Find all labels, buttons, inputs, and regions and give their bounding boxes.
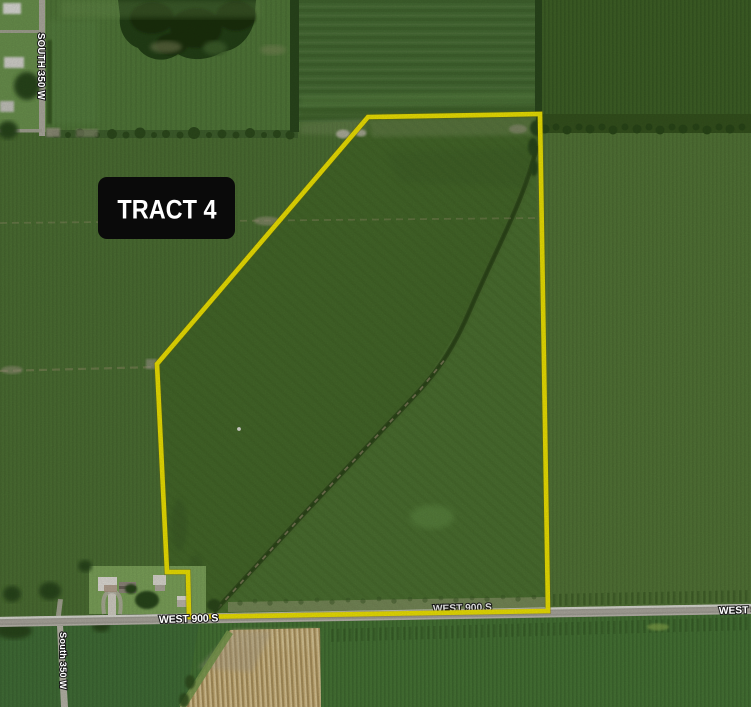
svg-text:SOUTH 350 W: SOUTH 350 W (35, 33, 46, 100)
svg-text:South 350 W: South 350 W (58, 632, 68, 689)
svg-text:WEST 900 S: WEST 900 S (159, 612, 219, 626)
svg-text:WEST 90: WEST 90 (719, 605, 751, 617)
